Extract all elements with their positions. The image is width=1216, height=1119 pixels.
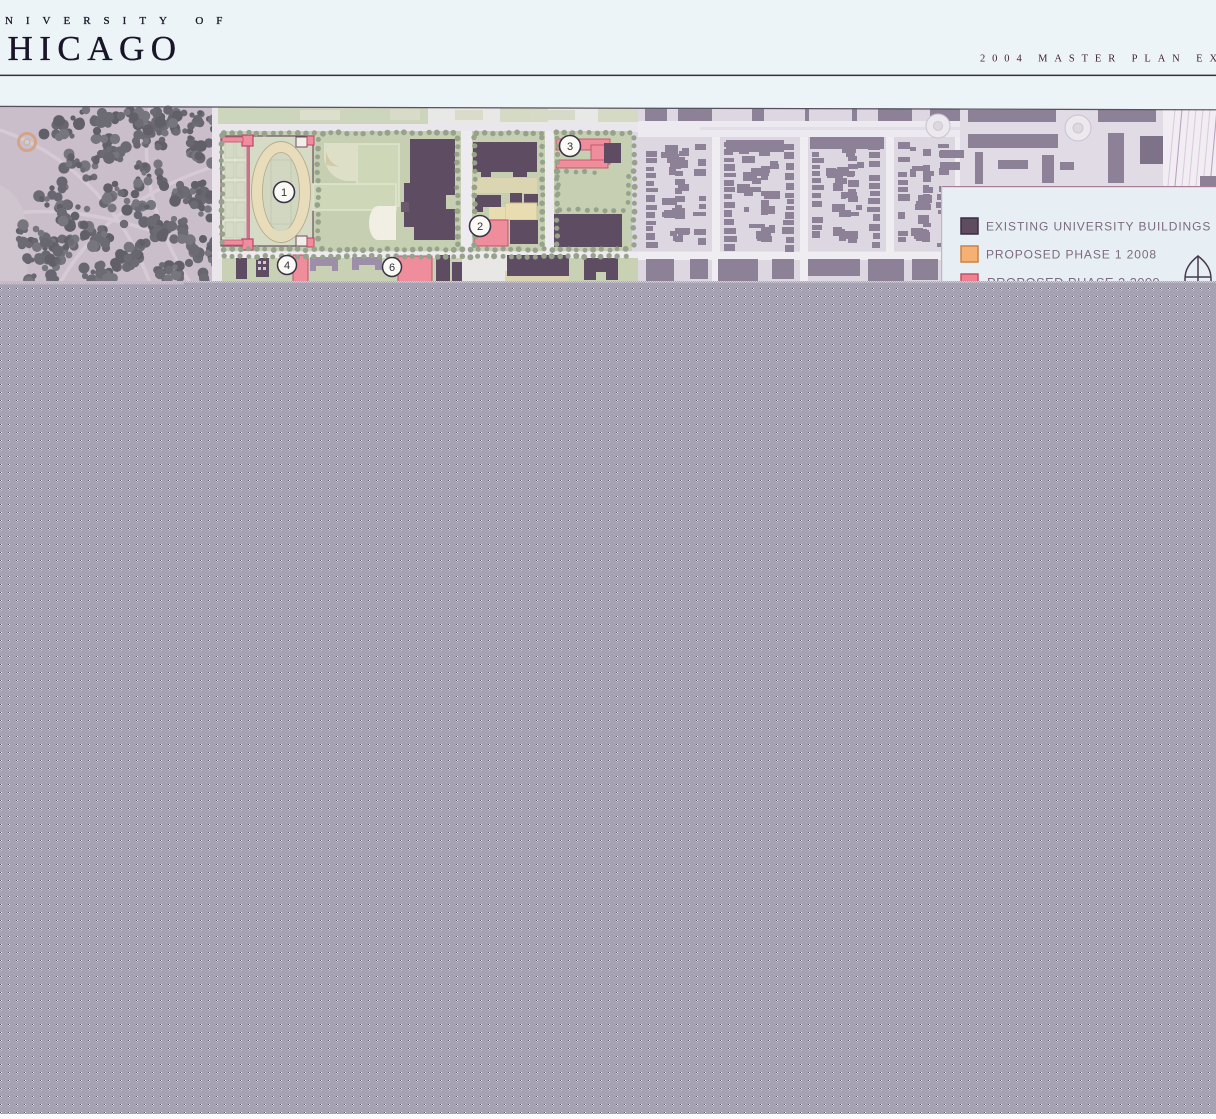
svg-text:4: 4 [284,260,290,272]
svg-text:2004 MASTER PLAN EX: 2004 MASTER PLAN EX [980,53,1216,64]
svg-text:CHICAGO: CHICAGO [0,29,183,68]
svg-text:PROPOSED PHASE 1 2008: PROPOSED PHASE 1 2008 [986,248,1157,262]
svg-text:UNIVERSITY OF: UNIVERSITY OF [0,15,235,27]
svg-text:6: 6 [389,262,395,274]
svg-text:3: 3 [567,141,573,153]
svg-text:EXISTING UNIVERSITY BUILDINGS: EXISTING UNIVERSITY BUILDINGS [986,220,1211,234]
svg-text:1: 1 [281,187,287,199]
svg-text:2: 2 [477,221,483,233]
